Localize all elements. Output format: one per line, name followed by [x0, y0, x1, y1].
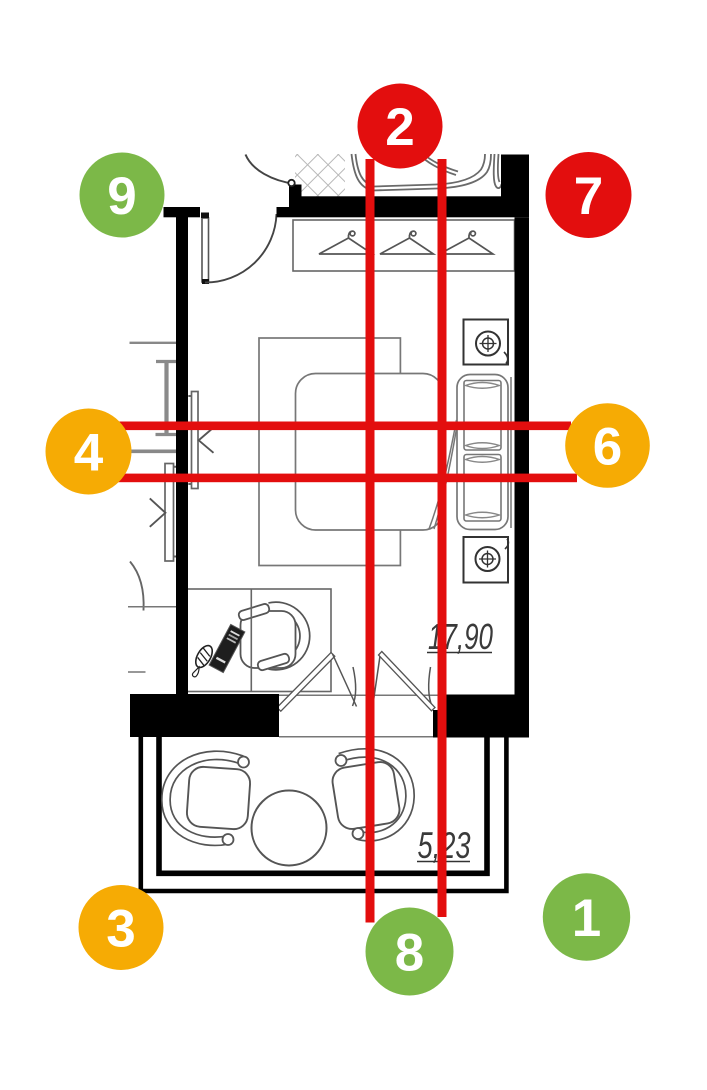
svg-text:3: 3: [106, 900, 135, 959]
svg-text:2: 2: [385, 98, 414, 157]
svg-text:4: 4: [74, 424, 104, 483]
svg-text:9: 9: [107, 167, 136, 226]
svg-text:1: 1: [572, 889, 601, 948]
svg-text:7: 7: [574, 167, 603, 226]
svg-text:8: 8: [395, 924, 424, 983]
svg-text:6: 6: [593, 418, 622, 477]
